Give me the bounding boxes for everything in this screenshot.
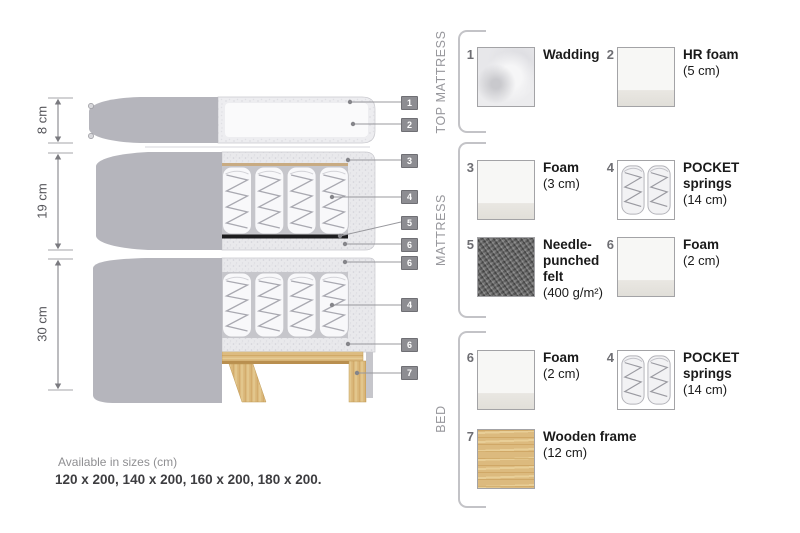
legend-item-pocket-springs: 4 POCKET springs (14 cm): [598, 160, 767, 220]
callout-chip-1: 1: [401, 96, 418, 110]
legend-item-detail: (2 cm): [683, 253, 767, 269]
wood-swatch: [477, 429, 535, 489]
legend-item-number: 7: [458, 429, 474, 444]
wadding-swatch: [477, 47, 535, 107]
foam-swatch: [617, 237, 675, 297]
legend-item-number: 3: [458, 160, 474, 175]
felt-swatch: [477, 237, 535, 297]
callout-chip-6a: 6: [401, 238, 418, 252]
legend-item-number: 6: [458, 350, 474, 365]
pocket-springs-swatch: [617, 350, 675, 410]
legend-item-number: 2: [598, 47, 614, 62]
sizes-title: Available in sizes (cm): [58, 455, 177, 469]
bed-construction-infographic: 8 cm 19 cm 30 cm 1 2 3 4 5 6 6 4 6 7 Ava…: [0, 0, 800, 533]
callout-chip-7: 7: [401, 366, 418, 380]
legend-item-detail: (14 cm): [683, 192, 767, 208]
legend-item-name: POCKET springs: [683, 350, 767, 382]
legend-item-detail: (5 cm): [683, 63, 767, 79]
legend-item-detail: (14 cm): [683, 382, 767, 398]
foam-swatch: [477, 350, 535, 410]
needle-punched-felt-layer: [222, 235, 348, 239]
legend-item-name: Wooden frame: [543, 429, 653, 445]
legend-item-name: POCKET springs: [683, 160, 767, 192]
dimension-label-30cm: 30 cm: [35, 306, 50, 341]
legend-item-number: 4: [598, 160, 614, 175]
legend-item-foam-2cm: 6 Foam (2 cm): [598, 237, 767, 297]
top-mattress-section: [88, 97, 375, 147]
callout-chip-4a: 4: [401, 190, 418, 204]
dimension-label-19cm: 19 cm: [35, 183, 50, 218]
wooden-frame: [222, 352, 366, 402]
sizes-list: 120 x 200, 140 x 200, 160 x 200, 180 x 2…: [55, 472, 322, 487]
section-title-bed: BED: [434, 405, 448, 433]
legend-item-name: HR foam: [683, 47, 767, 63]
bed-section: [93, 258, 375, 403]
callout-chip-5: 5: [401, 216, 418, 230]
legend-item-detail: (12 cm): [543, 445, 653, 461]
callout-chip-3: 3: [401, 154, 418, 168]
foam-swatch: [477, 160, 535, 220]
dimension-arrow-8cm: [48, 98, 73, 143]
legend-item-number: 4: [598, 350, 614, 365]
callout-chip-6c: 6: [401, 338, 418, 352]
legend-item-hr-foam: 2 HR foam (5 cm): [598, 47, 767, 107]
legend-item-number: 1: [458, 47, 474, 62]
legend-item-bed-pocket-springs: 4 POCKET springs (14 cm): [598, 350, 767, 410]
dimension-label-8cm: 8 cm: [35, 106, 50, 134]
dimension-arrow-19cm: [48, 153, 73, 250]
dimension-arrow-30cm: [48, 259, 73, 390]
callout-chip-2: 2: [401, 118, 418, 132]
callout-chip-6b: 6: [401, 256, 418, 270]
section-title-top-mattress: TOP MATTRESS: [434, 30, 448, 133]
callout-chip-4b: 4: [401, 298, 418, 312]
legend-item-wooden-frame: 7 Wooden frame (12 cm): [458, 429, 653, 489]
pocket-springs-swatch: [617, 160, 675, 220]
legend-item-number: 6: [598, 237, 614, 252]
foam-swatch: [617, 47, 675, 107]
section-title-mattress: MATTRESS: [434, 194, 448, 266]
legend-item-name: Foam: [683, 237, 767, 253]
bed-cross-section-diagram: [40, 90, 430, 415]
mattress-section: [96, 152, 375, 250]
legend-item-number: 5: [458, 237, 474, 252]
